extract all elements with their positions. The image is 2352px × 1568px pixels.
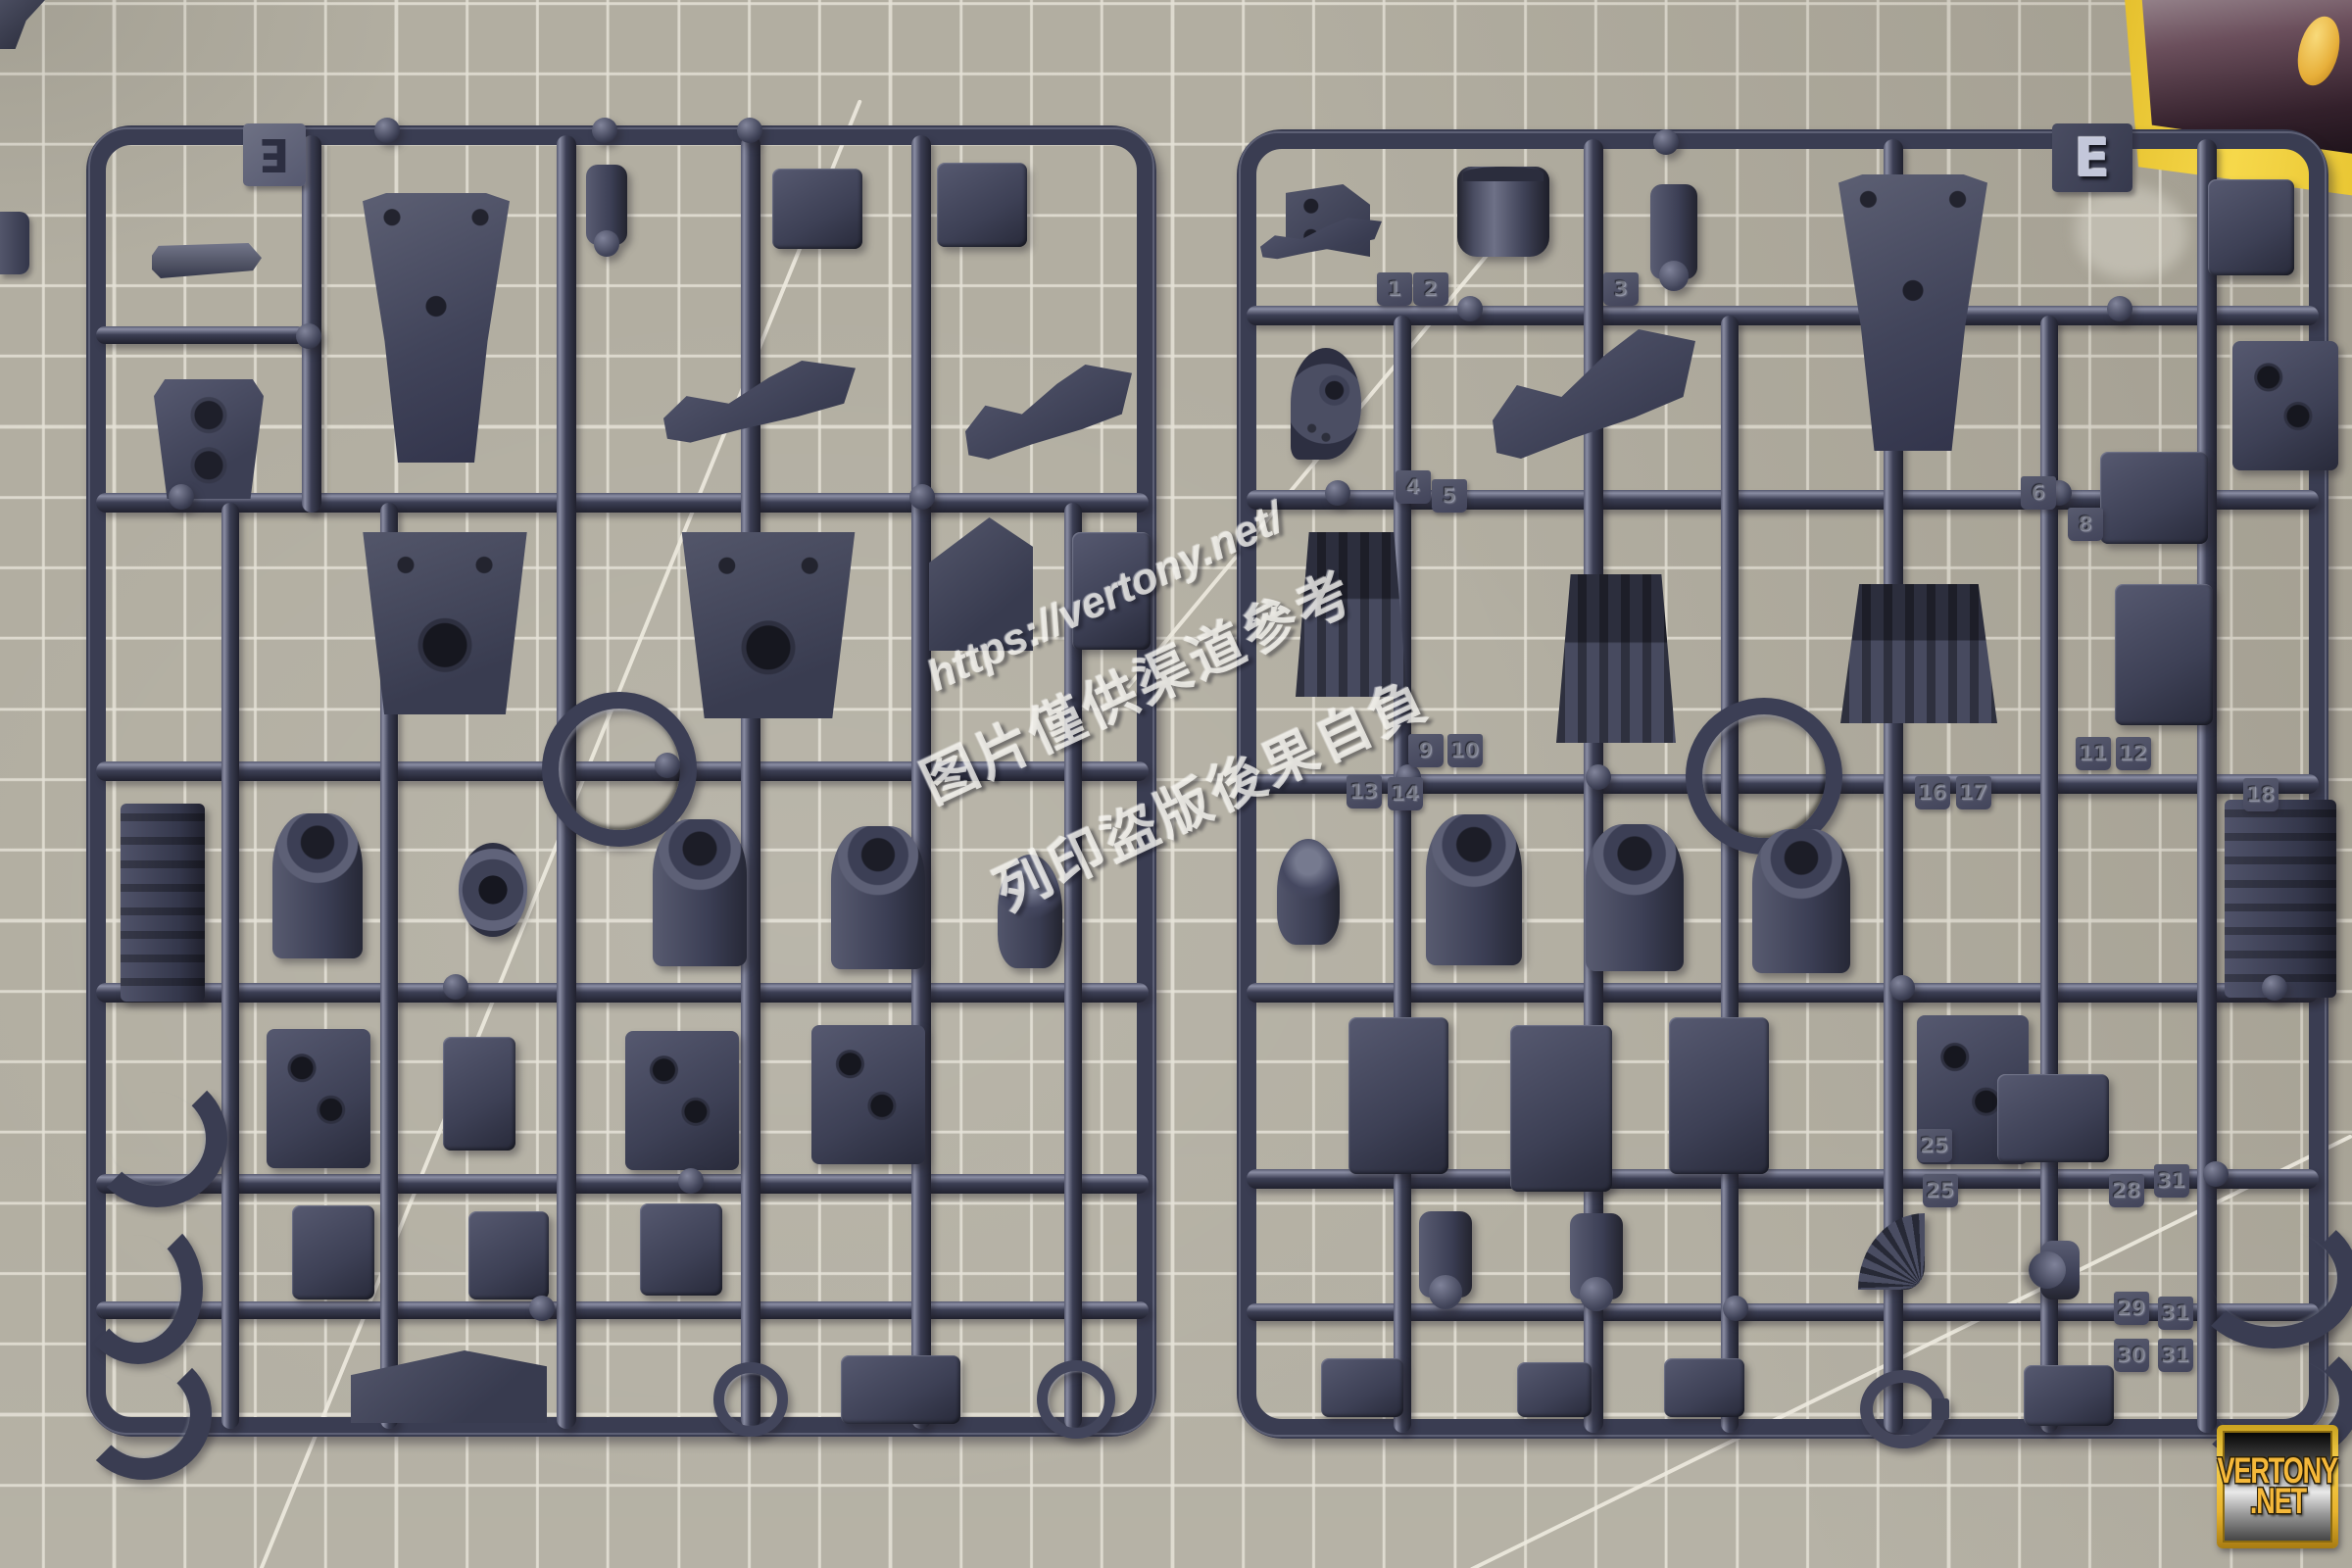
logo-text-bottom: .NET xyxy=(2249,1484,2305,1521)
sprue-part-nub xyxy=(737,118,762,143)
part-number-tag: 13 xyxy=(1347,775,1382,808)
sprue-part-joint xyxy=(1570,1213,1623,1299)
sprue-part-elbow xyxy=(2188,1207,2352,1348)
part-number-tag: 12 xyxy=(2116,737,2151,770)
part-number-tag: 30 xyxy=(2114,1339,2149,1372)
part-number-tag: 25 xyxy=(1923,1174,1958,1207)
sprue-part-block xyxy=(2115,584,2213,725)
part-number-tag: 31 xyxy=(2158,1339,2193,1372)
part-number-tag: 16 xyxy=(1915,776,1950,809)
sprue-part-blockholes xyxy=(2232,341,2338,470)
gate-letter-glyph: E xyxy=(259,128,289,181)
runner xyxy=(221,503,239,1429)
sprue-part-nub xyxy=(1457,296,1483,321)
sprue-part-cyl xyxy=(1457,167,1549,257)
sprue-part-nub xyxy=(1586,764,1611,790)
sprue-part-nub xyxy=(443,974,468,1000)
gate-letter-right: E xyxy=(2052,123,2132,192)
sprue-part-holetrap xyxy=(674,532,862,718)
gate-letter-glyph: E xyxy=(2075,127,2111,189)
runner xyxy=(96,493,1149,513)
sprue-part-block xyxy=(468,1211,549,1299)
sprue-part-nub xyxy=(1889,975,1915,1001)
part-number-tag: 31 xyxy=(2158,1297,2193,1330)
sprue-part-smallplate xyxy=(154,379,264,499)
sprue-part-block xyxy=(1517,1362,1592,1417)
vertony-logo-badge: VERTONY .NET xyxy=(2217,1425,2338,1548)
sprue-part-elbow xyxy=(76,1348,212,1480)
sprue-part-block xyxy=(2100,452,2208,544)
sprue-part-holetrap xyxy=(356,532,534,714)
sprue-part-block xyxy=(937,163,1027,247)
sprue-part-nub xyxy=(909,484,935,510)
sprue-part-nub xyxy=(296,323,321,349)
sprue-part-ringsm xyxy=(713,1362,788,1437)
sprue-part-nub xyxy=(1653,129,1679,155)
sprue-part-joint xyxy=(1650,184,1697,279)
sprue-part-nub xyxy=(1325,480,1350,506)
sprue-part-nub xyxy=(169,484,194,510)
sprue-part-turret xyxy=(1586,824,1684,971)
runner xyxy=(96,1174,1149,1194)
sprue-part-block xyxy=(640,1203,722,1296)
sprue-fragment xyxy=(0,212,29,274)
sprue-part-block xyxy=(841,1355,960,1424)
part-number-tag: 11 xyxy=(2076,737,2111,770)
part-number-tag: 28 xyxy=(2109,1174,2144,1207)
sprue-part-rail xyxy=(2225,800,2336,998)
sprue-part-block xyxy=(2208,179,2294,275)
sprue-part-turret xyxy=(1752,829,1850,973)
sprue-part-block xyxy=(292,1205,374,1299)
sprue-part-joint xyxy=(586,165,627,245)
part-number-tag: 3 xyxy=(1603,272,1639,306)
part-number-tag: 1 xyxy=(1377,272,1412,306)
sprue-part-turret xyxy=(831,826,925,969)
sprue-part-ringsm xyxy=(1037,1360,1115,1439)
gate-letter-left: E xyxy=(243,123,306,186)
sprue-part-nub xyxy=(2262,975,2287,1001)
sprue-part-blockholes xyxy=(811,1025,925,1164)
sprue-part-block xyxy=(772,169,862,249)
sprue-part-nub xyxy=(2203,1161,2229,1187)
sprue-part-block xyxy=(1664,1358,1744,1417)
part-number-tag: 29 xyxy=(2114,1292,2149,1325)
sprue-part-nub xyxy=(655,753,680,778)
sprue-part-joint xyxy=(1419,1211,1472,1298)
sprue-part-nub xyxy=(1723,1296,1748,1321)
sprue-part-block xyxy=(2024,1365,2114,1426)
photo-scene: E123456891011121314161718252528312931303… xyxy=(0,0,2352,1568)
part-number-tag: 10 xyxy=(1447,734,1483,767)
sprue-part-turret xyxy=(653,819,747,966)
part-number-tag: 5 xyxy=(1432,479,1467,513)
sprue-part-nub xyxy=(2107,296,2132,321)
sprue-part-elbow xyxy=(86,1070,227,1207)
sprue-part-elbow xyxy=(73,1213,203,1364)
runner xyxy=(96,983,1149,1003)
sprue-part-fan xyxy=(1291,348,1361,460)
runner xyxy=(96,326,306,344)
part-number-tag: 31 xyxy=(2154,1164,2189,1198)
sprue-part-joint xyxy=(2040,1241,2080,1299)
vertony-logo-inner: VERTONY .NET xyxy=(2223,1431,2332,1543)
sprue-part-nub xyxy=(529,1296,555,1321)
sprue-part-block xyxy=(1321,1358,1403,1417)
part-number-tag: 14 xyxy=(1388,777,1423,810)
sprue-part-block xyxy=(1669,1017,1769,1174)
sprue-part-block xyxy=(1510,1025,1612,1192)
runner xyxy=(96,1301,1149,1319)
sprue-part-turret xyxy=(1426,814,1522,965)
sprue-part-block xyxy=(1997,1074,2109,1162)
sprue-part-fintrap xyxy=(1840,584,1997,723)
part-number-tag: 6 xyxy=(2021,476,2056,510)
sprue-part-collar xyxy=(459,843,527,937)
part-number-tag: 17 xyxy=(1956,776,1991,809)
sprue-part-fintrap xyxy=(1556,574,1676,743)
sprue-part-turret xyxy=(272,813,363,958)
sprue-part-nub xyxy=(592,118,617,143)
sprue-part-blockholes xyxy=(625,1031,739,1170)
sprue-part-nub xyxy=(678,1168,704,1194)
runner xyxy=(1721,316,1739,1433)
part-number-tag: 25 xyxy=(1917,1129,1952,1162)
sprue-part-ringtab xyxy=(1860,1370,1946,1448)
part-number-tag: 8 xyxy=(2068,508,2103,541)
part-number-tag: 18 xyxy=(2243,778,2278,811)
sprue-part-rail xyxy=(121,804,205,1002)
sprue-part-blockholes xyxy=(267,1029,370,1168)
sprue-part-balljoint xyxy=(1277,839,1340,945)
runner xyxy=(741,135,760,1429)
sprue-part-block xyxy=(443,1037,515,1151)
part-number-tag: 4 xyxy=(1396,470,1431,504)
sprue-part-nub xyxy=(374,118,400,143)
sprue-part-block xyxy=(1348,1017,1448,1174)
part-number-tag: 2 xyxy=(1413,272,1448,306)
